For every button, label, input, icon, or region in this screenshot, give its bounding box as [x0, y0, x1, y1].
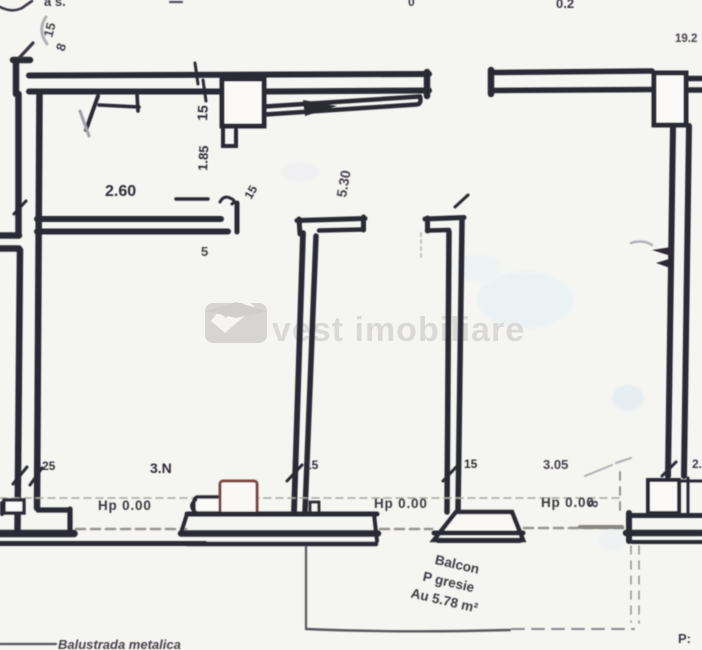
- svg-text:a s.: a s.: [44, 0, 66, 9]
- svg-text:Hp 0.00: Hp 0.00: [374, 496, 428, 511]
- svg-text:3.N: 3.N: [150, 460, 172, 476]
- svg-text:15: 15: [464, 457, 478, 471]
- svg-text:Hp 0.00: Hp 0.00: [98, 498, 152, 513]
- svg-text:15: 15: [305, 458, 319, 472]
- svg-text:Hp 0.00: Hp 0.00: [541, 495, 595, 510]
- svg-text:0.2: 0.2: [556, 0, 574, 11]
- svg-text:2.60: 2.60: [105, 183, 136, 200]
- svg-text:0: 0: [408, 0, 415, 9]
- svg-text:15: 15: [194, 105, 211, 122]
- svg-text:3.05: 3.05: [543, 457, 568, 472]
- svg-text:P:: P:: [678, 631, 691, 646]
- svg-text:1.85: 1.85: [195, 145, 211, 171]
- svg-text:Balustrada metalica: Balustrada metalica: [58, 637, 181, 650]
- svg-text:5: 5: [201, 244, 208, 259]
- svg-text:2.: 2.: [692, 457, 702, 471]
- svg-text:19.2: 19.2: [675, 33, 697, 45]
- svg-text:25: 25: [42, 459, 56, 473]
